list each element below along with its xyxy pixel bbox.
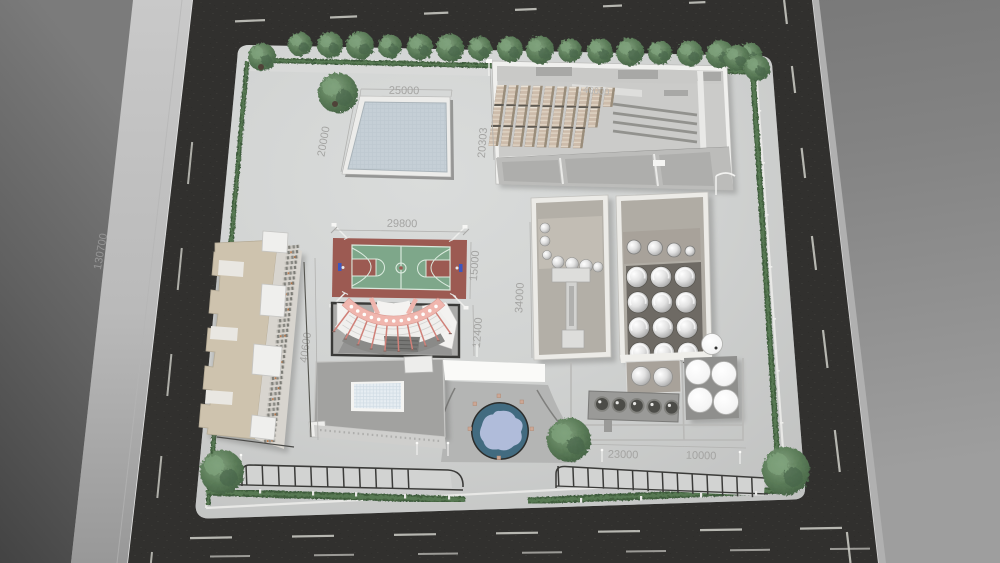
svg-text:23000: 23000 xyxy=(608,449,639,462)
svg-text:34000: 34000 xyxy=(513,282,527,313)
svg-text:15000: 15000 xyxy=(468,250,482,281)
svg-text:25000: 25000 xyxy=(389,85,420,98)
svg-text:12400: 12400 xyxy=(471,317,485,348)
svg-text:20303: 20303 xyxy=(476,127,490,158)
svg-text:10000: 10000 xyxy=(686,450,717,463)
svg-text:29800: 29800 xyxy=(387,218,418,231)
